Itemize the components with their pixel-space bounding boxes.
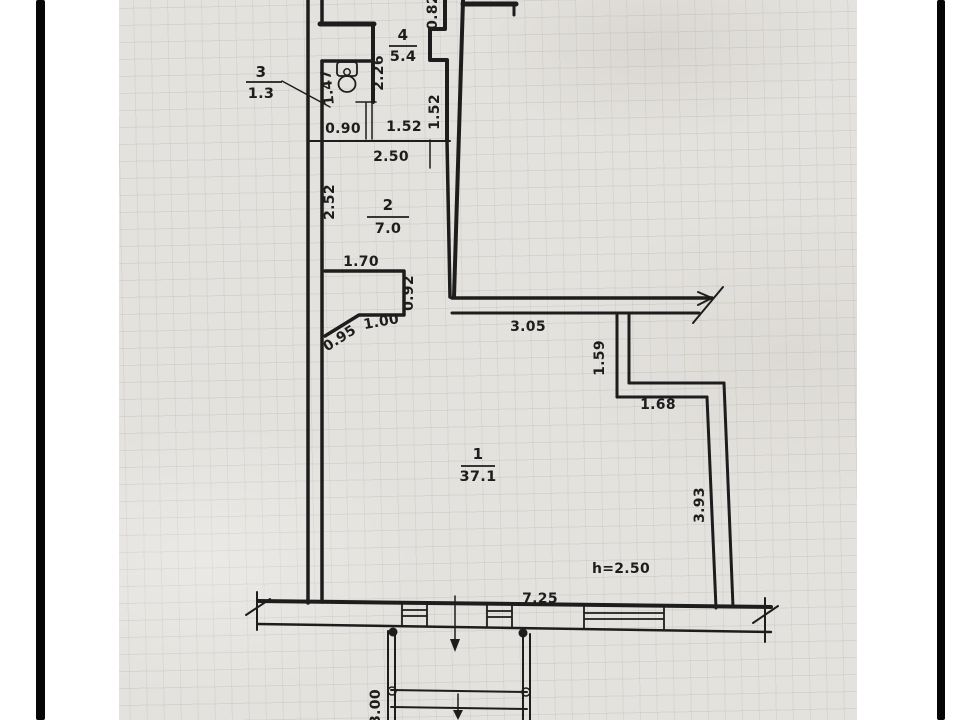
balcony-right-rail xyxy=(523,634,530,720)
balcony-anchor-right xyxy=(519,629,527,637)
room-2-label-number: 2 xyxy=(383,196,394,214)
scanned-floor-plan-page: 137.127.031.345.4 0.822.261.471.520.901.… xyxy=(0,0,960,720)
dim-1-59: 1.59 xyxy=(592,340,608,376)
balcony-axis-arrowhead xyxy=(453,710,463,720)
wall-room4-inner-lower xyxy=(447,140,450,297)
balcony-rail-lower xyxy=(391,707,527,709)
window-3 xyxy=(584,605,664,629)
dim-1-47: 1.47 xyxy=(318,69,338,106)
dim-3-00: 3.00 xyxy=(368,689,384,720)
plan-fixtures xyxy=(337,62,530,720)
window-2 xyxy=(487,604,512,627)
balcony-anchor-left xyxy=(389,628,397,636)
dim-0-92: 0.92 xyxy=(401,275,417,311)
dim-2-26: 2.26 xyxy=(371,55,387,91)
wall-right-inner xyxy=(707,397,716,608)
room-4-label-area: 5.4 xyxy=(390,49,417,65)
floor-plan-drawing: 137.127.031.345.4 0.822.261.471.520.901.… xyxy=(0,0,960,720)
dim-3-93: 3.93 xyxy=(692,487,708,523)
window-1 xyxy=(402,603,427,626)
wall-right-outer-lower xyxy=(724,383,733,607)
dim-1-52-vert: 1.52 xyxy=(427,94,443,130)
room-2-label-area: 7.0 xyxy=(375,221,402,237)
dimension-labels: 0.822.261.471.520.901.522.502.521.700.92… xyxy=(318,0,708,720)
dim-2-50: 2.50 xyxy=(373,149,409,165)
room-height-note: h=2.50 xyxy=(592,561,650,577)
dim-0-82: 0.82 xyxy=(425,0,441,30)
dim-0-90: 0.90 xyxy=(325,121,361,137)
room-4-label-number: 4 xyxy=(398,26,409,44)
room-1-label-area: 37.1 xyxy=(460,469,497,485)
dim-1-68: 1.68 xyxy=(640,397,676,413)
dim-1-52-horiz: 1.52 xyxy=(386,119,422,135)
dim-2-52: 2.52 xyxy=(322,184,338,220)
wall-bottom-right-break xyxy=(753,598,778,642)
room-3-label-number: 3 xyxy=(256,63,267,81)
wall-bottom-bottom-edge xyxy=(258,624,771,632)
dim-1-70: 1.70 xyxy=(343,254,379,270)
wall-right-outer-upper xyxy=(454,0,463,297)
dim-7-25: 7.25 xyxy=(522,591,558,607)
balcony-rail-upper xyxy=(391,690,527,692)
floor-plan-walls xyxy=(246,0,778,720)
toilet-bowl xyxy=(339,76,356,92)
wall-bottom-top-edge xyxy=(258,601,771,607)
toilet-flush-button xyxy=(344,69,350,75)
dim-3-05: 3.05 xyxy=(510,319,546,335)
balcony-door-arrowhead xyxy=(450,639,460,652)
room-1-label-number: 1 xyxy=(473,445,484,463)
room-3-label-area: 1.3 xyxy=(248,86,275,102)
